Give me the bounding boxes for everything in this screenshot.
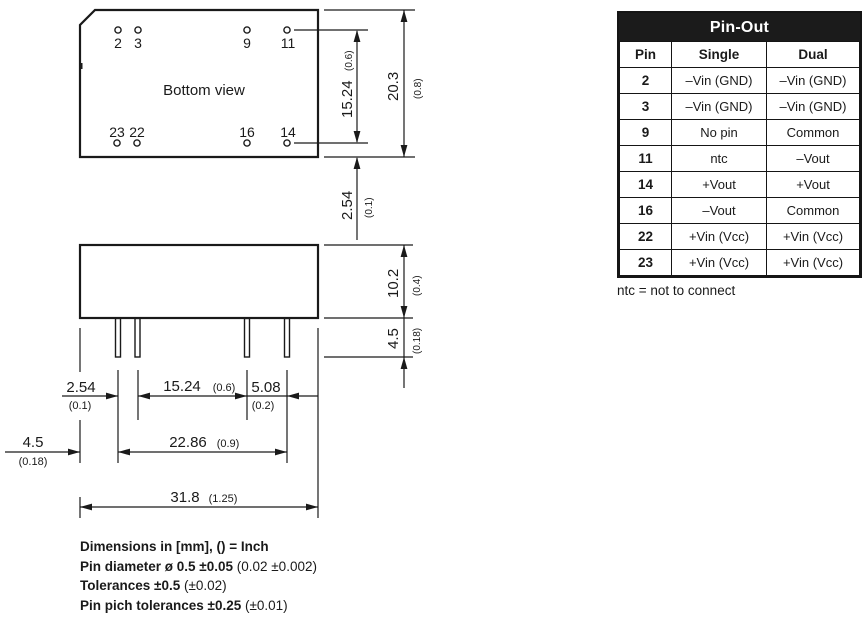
dim-case-depth-mm: 20.3	[385, 72, 402, 101]
cell-pin: 14	[620, 172, 672, 198]
col-header-pin: Pin	[620, 42, 672, 68]
cell-pin: 9	[620, 120, 672, 146]
pin-hole-11	[284, 27, 290, 33]
dim-case-height-inch: (0.4)	[412, 275, 423, 296]
cell-dual: –Vout	[767, 146, 860, 172]
pinout-table-container: Pin-Out Pin Single Dual 2 –Vin (GND) –Vi…	[617, 11, 862, 278]
cell-pin: 2	[620, 68, 672, 94]
cell-single: +Vin (Vcc)	[672, 250, 767, 276]
note-inch: (0.02 ±0.002)	[237, 559, 317, 574]
dim-edge-to-pin-inch: (0.18)	[19, 456, 48, 468]
bottom-view: 2 3 9 11 23 22 16 14 Bottom view	[79, 10, 318, 157]
pin-label: 16	[239, 124, 255, 140]
cell-single: –Vin (GND)	[672, 94, 767, 120]
cell-pin: 3	[620, 94, 672, 120]
pinout-title: Pin-Out	[619, 13, 860, 41]
dim-pin-row-spacing: 15.24 (0.6)	[339, 50, 356, 118]
cell-single: –Vout	[672, 198, 767, 224]
pin-lead	[245, 319, 250, 358]
dim-inch: (0.6)	[344, 50, 355, 71]
cell-dual: +Vin (Vcc)	[767, 250, 860, 276]
cell-pin: 23	[620, 250, 672, 276]
dim-pitch3-mm: 5.08	[251, 379, 280, 396]
pinout-row: 16 –Vout Common	[620, 198, 860, 224]
side-view-outline	[80, 245, 318, 318]
pin-label: 23	[109, 124, 125, 140]
mechanical-drawing: 2 3 9 11 23 22 16 14 Bottom view	[0, 0, 610, 626]
bottom-view-label: Bottom view	[163, 82, 245, 99]
pin-label: 9	[243, 35, 251, 51]
note-text: Pin diameter ø 0.5 ±0.05	[80, 559, 233, 574]
pinout-table: Pin Single Dual 2 –Vin (GND) –Vin (GND) …	[619, 41, 860, 276]
dim-pin-length-mm: 4.5	[385, 328, 402, 349]
cell-single: +Vin (Vcc)	[672, 224, 767, 250]
cell-single: –Vin (GND)	[672, 68, 767, 94]
pinout-row: 14 +Vout +Vout	[620, 172, 860, 198]
pin-hole-9	[244, 27, 250, 33]
dim-pin-span-mm: 22.86	[169, 434, 207, 451]
dim-pitch1-mm: 2.54	[66, 379, 95, 396]
cell-dual: Common	[767, 120, 860, 146]
pin-lead	[285, 319, 290, 358]
note-line: Pin diameter ø 0.5 ±0.05 (0.02 ±0.002)	[80, 557, 317, 577]
dim-pitch2-mm: 15.24	[163, 378, 201, 395]
note-text: Pin pich tolerances ±0.25	[80, 598, 241, 613]
dim-pitch1-inch: (0.1)	[69, 400, 92, 412]
cell-dual: +Vout	[767, 172, 860, 198]
dim-pitch2-inch: (0.6)	[213, 382, 236, 394]
pinout-row: 11 ntc –Vout	[620, 146, 860, 172]
note-line: Tolerances ±0.5 (±0.02)	[80, 576, 317, 596]
dim-pin-row-to-edge-mm: 2.54	[339, 191, 356, 220]
side-view-pins	[116, 319, 290, 358]
pin-hole-2	[115, 27, 121, 33]
pin-label: 11	[281, 35, 296, 51]
pinout-row: 23 +Vin (Vcc) +Vin (Vcc)	[620, 250, 860, 276]
dimension-notes: Dimensions in [mm], () = Inch Pin diamet…	[80, 537, 317, 615]
datasheet-mechanical-page: 2 3 9 11 23 22 16 14 Bottom view	[0, 0, 868, 626]
cell-pin: 16	[620, 198, 672, 224]
dim-edge-to-pin-mm: 4.5	[23, 434, 44, 451]
pin-lead	[135, 319, 140, 358]
cell-dual: –Vin (GND)	[767, 68, 860, 94]
pin-lead	[116, 319, 121, 358]
cell-single: +Vout	[672, 172, 767, 198]
cell-dual: +Vin (Vcc)	[767, 224, 860, 250]
dim-pin-span-inch: (0.9)	[217, 438, 240, 450]
pin-label: 22	[129, 124, 145, 140]
note-line: Pin pich tolerances ±0.25 (±0.01)	[80, 596, 317, 616]
cell-pin: 11	[620, 146, 672, 172]
note-text: Tolerances ±0.5	[80, 578, 180, 593]
pin1-index-mark	[79, 63, 83, 69]
cell-dual: Common	[767, 198, 860, 224]
col-header-dual: Dual	[767, 42, 860, 68]
dim-pitch3-inch: (0.2)	[252, 400, 275, 412]
pinout-row: 9 No pin Common	[620, 120, 860, 146]
pin-hole-16	[244, 140, 250, 146]
dim-mm: 15.24	[339, 80, 356, 118]
side-view	[80, 245, 318, 357]
pin-label: 2	[114, 35, 122, 51]
pin-hole-14	[284, 140, 290, 146]
pin-hole-22	[134, 140, 140, 146]
pin-label: 3	[134, 35, 142, 51]
cell-pin: 22	[620, 224, 672, 250]
note-inch: (±0.01)	[245, 598, 288, 613]
pinout-row: 2 –Vin (GND) –Vin (GND)	[620, 68, 860, 94]
note-text: Dimensions in [mm], () = Inch	[80, 539, 269, 554]
pin-hole-23	[114, 140, 120, 146]
dim-pin-length-inch: (0.18)	[412, 328, 423, 354]
dim-case-depth-inch: (0.8)	[413, 78, 424, 99]
pinout-row: 22 +Vin (Vcc) +Vin (Vcc)	[620, 224, 860, 250]
dim-case-height-mm: 10.2	[385, 269, 402, 298]
cell-dual: –Vin (GND)	[767, 94, 860, 120]
pin-hole-3	[135, 27, 141, 33]
cell-single: No pin	[672, 120, 767, 146]
col-header-single: Single	[672, 42, 767, 68]
dim-case-width-inch: (1.25)	[209, 493, 238, 505]
pinout-row: 3 –Vin (GND) –Vin (GND)	[620, 94, 860, 120]
cell-single: ntc	[672, 146, 767, 172]
pin-label: 14	[280, 124, 296, 140]
note-inch: (±0.02)	[184, 578, 227, 593]
note-line: Dimensions in [mm], () = Inch	[80, 537, 317, 557]
dim-pin-row-to-edge-inch: (0.1)	[364, 197, 375, 218]
dim-case-width-mm: 31.8	[170, 489, 199, 506]
pinout-header-row: Pin Single Dual	[620, 42, 860, 68]
ntc-footnote: ntc = not to connect	[617, 283, 735, 298]
